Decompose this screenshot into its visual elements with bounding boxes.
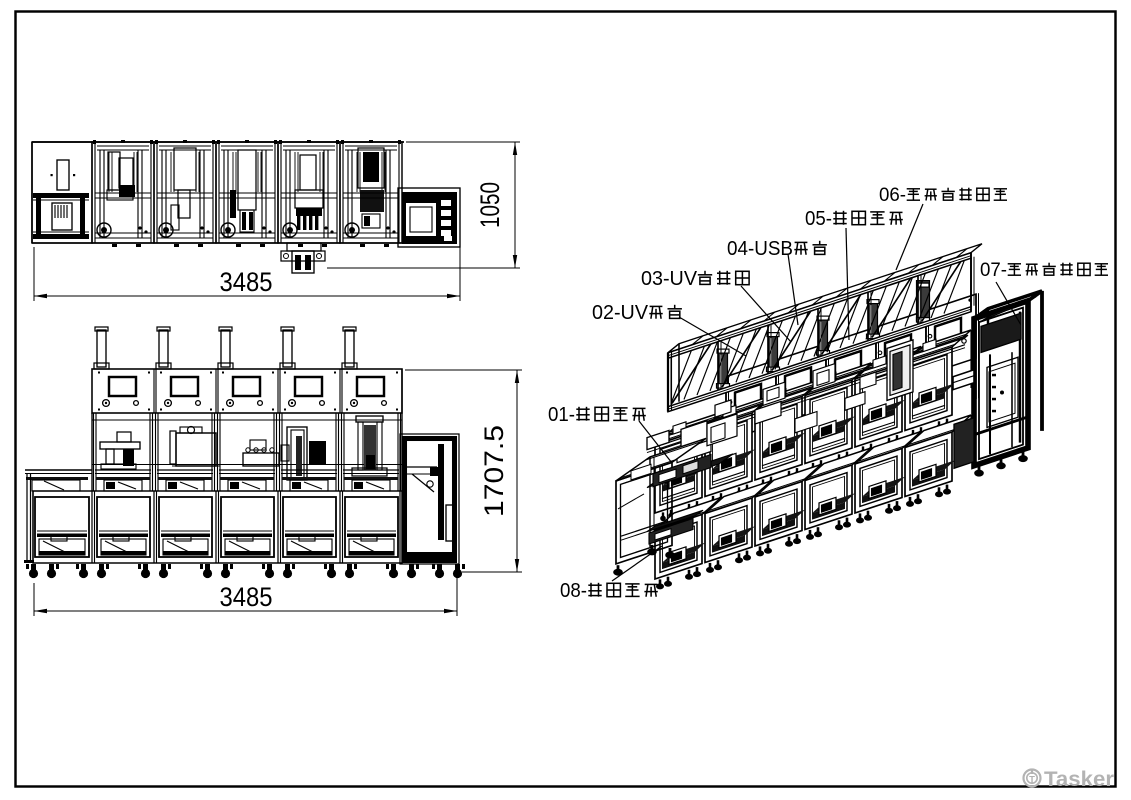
svg-text:1050: 1050: [475, 182, 505, 228]
svg-text:08-: 08-: [560, 579, 587, 602]
svg-text:Tasker: Tasker: [1044, 768, 1114, 791]
svg-text:3485: 3485: [220, 267, 273, 297]
svg-text:1707.5: 1707.5: [479, 425, 509, 517]
svg-text:05-: 05-: [805, 207, 832, 230]
svg-text:03-UV: 03-UV: [641, 267, 697, 290]
svg-text:02-UV: 02-UV: [592, 301, 648, 324]
svg-text:01-: 01-: [548, 403, 575, 426]
svg-text:T: T: [1029, 775, 1035, 786]
svg-text:06-: 06-: [879, 185, 906, 206]
svg-text:07-: 07-: [980, 260, 1007, 281]
svg-text:3485: 3485: [220, 582, 273, 612]
svg-text:04-USB: 04-USB: [727, 237, 793, 260]
